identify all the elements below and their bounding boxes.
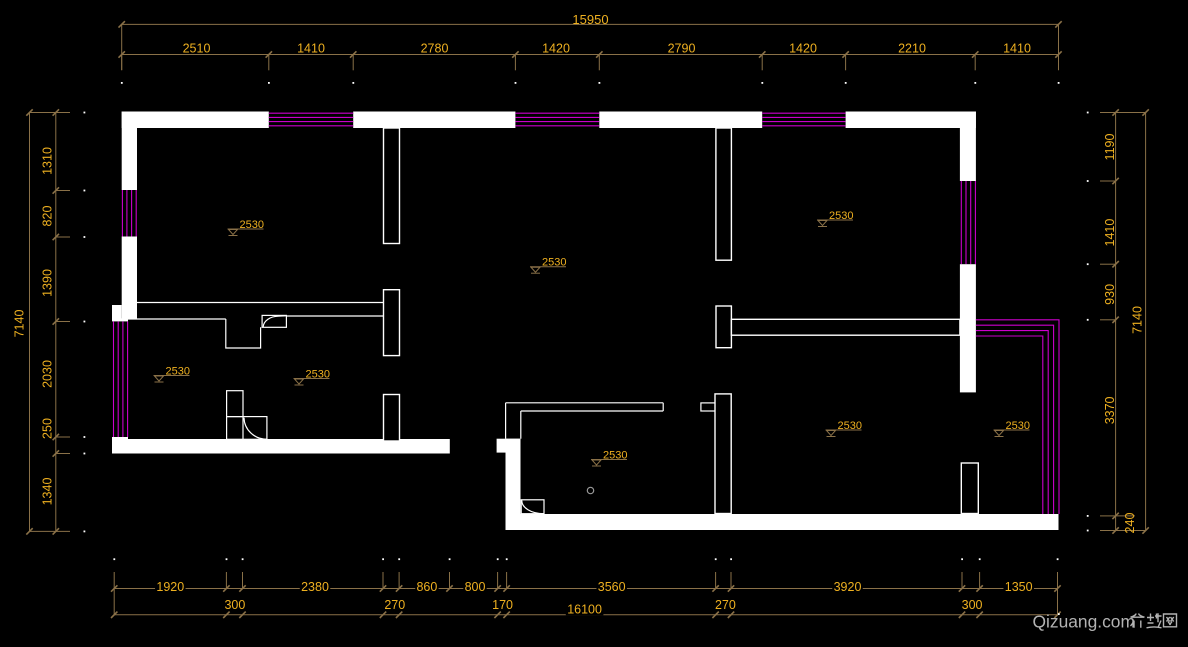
- svg-text:2530: 2530: [542, 257, 566, 269]
- svg-text:2530: 2530: [306, 369, 330, 381]
- svg-text:2530: 2530: [166, 366, 190, 378]
- svg-text:1390: 1390: [41, 269, 55, 297]
- svg-text:2030: 2030: [41, 360, 55, 388]
- svg-text:1920: 1920: [156, 580, 184, 594]
- svg-text:2530: 2530: [838, 420, 862, 432]
- svg-text:1410: 1410: [1003, 41, 1031, 55]
- svg-text:7140: 7140: [13, 310, 27, 338]
- svg-text:860: 860: [416, 580, 437, 594]
- svg-text:240: 240: [1123, 513, 1137, 534]
- svg-text:1340: 1340: [41, 478, 55, 506]
- svg-text:3920: 3920: [834, 580, 862, 594]
- svg-text:270: 270: [384, 598, 405, 612]
- svg-text:300: 300: [962, 598, 983, 612]
- svg-text:300: 300: [224, 598, 245, 612]
- svg-text:1350: 1350: [1005, 580, 1033, 594]
- svg-text:7140: 7140: [1131, 306, 1145, 334]
- svg-text:2780: 2780: [421, 41, 449, 55]
- svg-text:2790: 2790: [668, 41, 696, 55]
- svg-text:1420: 1420: [789, 41, 817, 55]
- svg-text:270: 270: [715, 598, 736, 612]
- svg-text:2530: 2530: [1006, 420, 1030, 432]
- svg-text:930: 930: [1103, 284, 1117, 305]
- svg-text:1410: 1410: [297, 41, 325, 55]
- svg-text:2210: 2210: [898, 41, 926, 55]
- svg-text:2530: 2530: [603, 450, 627, 462]
- svg-text:2530: 2530: [829, 210, 853, 222]
- svg-text:Qizuang.com: Qizuang.com: [1033, 612, 1135, 632]
- svg-text:820: 820: [41, 206, 55, 227]
- svg-text:1190: 1190: [1103, 134, 1117, 161]
- svg-text:2530: 2530: [240, 219, 264, 231]
- svg-text:1310: 1310: [41, 147, 55, 175]
- svg-text:15950: 15950: [572, 12, 608, 27]
- svg-text:2380: 2380: [301, 580, 329, 594]
- svg-text:3370: 3370: [1103, 396, 1117, 424]
- svg-text:2510: 2510: [183, 41, 211, 55]
- svg-text:3560: 3560: [598, 580, 626, 594]
- svg-text:170: 170: [492, 598, 513, 612]
- svg-text:800: 800: [465, 580, 486, 594]
- svg-text:16100: 16100: [567, 603, 602, 617]
- svg-text:1420: 1420: [542, 41, 570, 55]
- svg-text:250: 250: [41, 418, 55, 439]
- svg-text:1410: 1410: [1103, 219, 1117, 247]
